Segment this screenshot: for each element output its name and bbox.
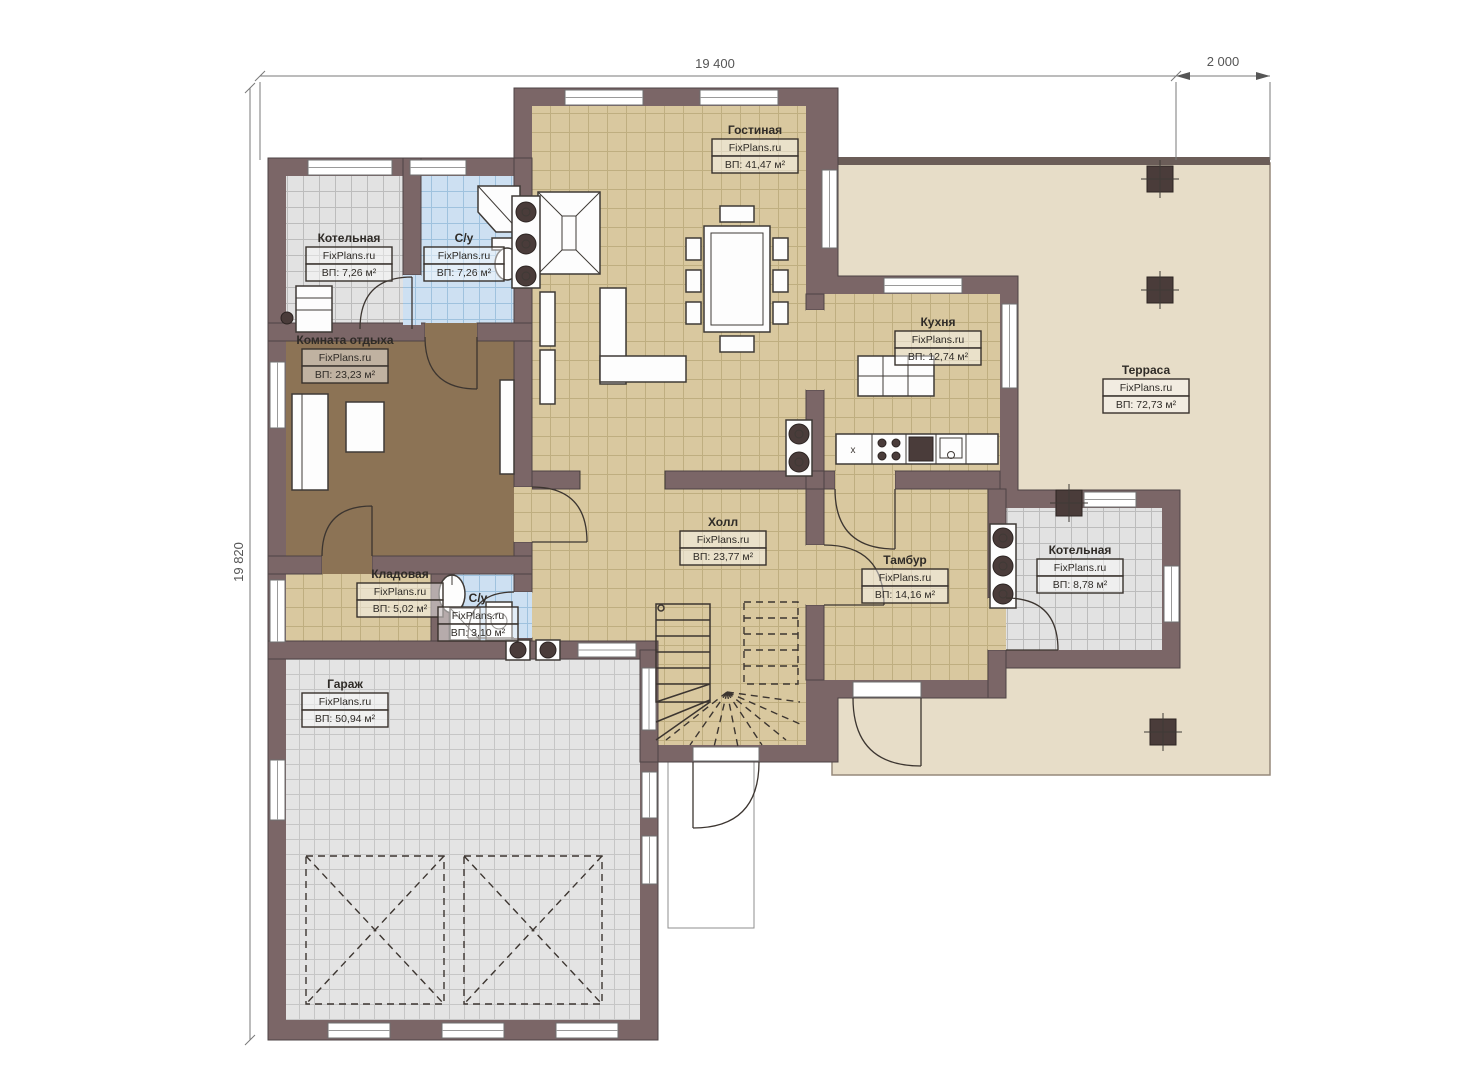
kitchen-counter: x bbox=[836, 434, 998, 464]
room-area: ВП: 50,94 м² bbox=[315, 713, 376, 725]
dim-arrow-right bbox=[1256, 72, 1270, 80]
terrace-column bbox=[1141, 271, 1179, 309]
window bbox=[822, 170, 837, 248]
room-label-boiler-top: Котельная FixPlans.ru ВП: 7,26 м² bbox=[306, 231, 392, 281]
front-door-opening bbox=[693, 747, 759, 761]
fridge bbox=[909, 437, 933, 461]
brand-watermark: FixPlans.ru bbox=[323, 250, 376, 262]
svg-text:С/у: С/у bbox=[469, 591, 488, 605]
svg-text:Тамбур: Тамбур bbox=[883, 553, 927, 567]
svg-text:Терраса: Терраса bbox=[1122, 363, 1171, 377]
room-area: ВП: 72,73 м² bbox=[1116, 399, 1177, 411]
room-label-boiler-right: Котельная FixPlans.ru ВП: 8,78 м² bbox=[1037, 543, 1123, 593]
svg-text:Гараж: Гараж bbox=[327, 677, 363, 691]
svg-text:Комната отдыха: Комната отдыха bbox=[296, 333, 393, 347]
room-area: ВП: 3,10 м² bbox=[451, 627, 506, 639]
brand-watermark: FixPlans.ru bbox=[879, 572, 932, 584]
window bbox=[270, 760, 285, 820]
terrace-column bbox=[1141, 160, 1179, 198]
window bbox=[410, 160, 466, 175]
chimney bbox=[1050, 484, 1088, 522]
window bbox=[1084, 492, 1136, 507]
window bbox=[1002, 304, 1017, 388]
brand-watermark: FixPlans.ru bbox=[319, 696, 372, 708]
svg-text:Холл: Холл bbox=[708, 515, 738, 529]
cabinet bbox=[540, 350, 555, 404]
terrace-top-edge bbox=[832, 157, 1270, 165]
brand-watermark: FixPlans.ru bbox=[438, 250, 491, 262]
dim-left-height: 19 820 bbox=[231, 542, 246, 582]
floor-plan-canvas: x bbox=[0, 0, 1473, 1080]
cabinet-x-mark: x bbox=[851, 445, 856, 456]
svg-text:Котельная: Котельная bbox=[318, 231, 381, 245]
coffee-table bbox=[346, 402, 384, 452]
room-area: ВП: 8,78 м² bbox=[1053, 579, 1108, 591]
room-area: ВП: 7,26 м² bbox=[437, 267, 492, 279]
brand-watermark: FixPlans.ru bbox=[729, 142, 782, 154]
floor-plan-svg: x bbox=[0, 0, 1473, 1080]
brand-watermark: FixPlans.ru bbox=[912, 334, 965, 346]
room-area: ВП: 12,74 м² bbox=[908, 351, 969, 363]
window bbox=[642, 668, 656, 730]
window bbox=[565, 90, 643, 105]
exterior-door-opening bbox=[853, 682, 921, 697]
window bbox=[578, 643, 636, 657]
window bbox=[308, 160, 392, 175]
fireplace bbox=[538, 192, 600, 274]
svg-text:С/у: С/у bbox=[455, 231, 474, 245]
window bbox=[642, 772, 657, 818]
brand-watermark: FixPlans.ru bbox=[697, 534, 750, 546]
window bbox=[884, 278, 962, 293]
brand-watermark: FixPlans.ru bbox=[452, 610, 505, 622]
tv-stand bbox=[500, 380, 514, 474]
entry-porch bbox=[668, 762, 754, 928]
svg-text:Гостиная: Гостиная bbox=[728, 123, 782, 137]
window bbox=[700, 90, 778, 105]
brand-watermark: FixPlans.ru bbox=[374, 586, 427, 598]
terrace-column bbox=[1144, 713, 1182, 751]
room-area: ВП: 5,02 м² bbox=[373, 603, 428, 615]
window bbox=[556, 1023, 618, 1038]
window bbox=[270, 362, 285, 428]
brand-watermark: FixPlans.ru bbox=[1054, 562, 1107, 574]
window bbox=[1164, 566, 1179, 622]
vent-stack bbox=[512, 196, 540, 288]
vent-stack bbox=[990, 524, 1016, 608]
room-area: ВП: 7,26 м² bbox=[322, 267, 377, 279]
room-label-lounge: Комната отдыха FixPlans.ru ВП: 23,23 м² bbox=[296, 333, 393, 383]
svg-text:Кухня: Кухня bbox=[920, 315, 955, 329]
dim-top-right-width: 2 000 bbox=[1207, 54, 1240, 69]
vent-stack bbox=[786, 420, 812, 476]
svg-text:Котельная: Котельная bbox=[1049, 543, 1112, 557]
window bbox=[328, 1023, 390, 1038]
window bbox=[442, 1023, 504, 1038]
lounge-sofa bbox=[292, 394, 328, 490]
window bbox=[642, 836, 657, 884]
room-area: ВП: 14,16 м² bbox=[875, 589, 936, 601]
dim-top-width: 19 400 bbox=[695, 56, 735, 71]
window bbox=[270, 580, 285, 642]
room-area: ВП: 41,47 м² bbox=[725, 159, 786, 171]
brand-watermark: FixPlans.ru bbox=[1120, 382, 1173, 394]
room-area: ВП: 23,23 м² bbox=[315, 369, 376, 381]
room-area: ВП: 23,77 м² bbox=[693, 551, 754, 563]
brand-watermark: FixPlans.ru bbox=[319, 352, 372, 364]
cabinet bbox=[540, 292, 555, 346]
svg-text:Кладовая: Кладовая bbox=[371, 567, 428, 581]
